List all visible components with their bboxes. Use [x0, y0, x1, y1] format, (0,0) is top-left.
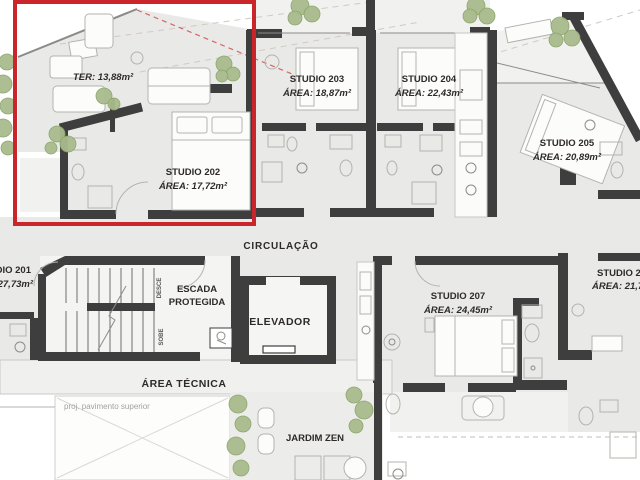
label-terrace-202: TER: 13,88m² — [73, 72, 134, 83]
label-studio-207: STUDIO 207 — [431, 291, 485, 302]
label-elevator: ELEVADOR — [249, 316, 311, 328]
stepping-stone — [258, 408, 274, 428]
label-zen-garden: JARDIM ZEN — [286, 433, 344, 444]
label-studio-205: STUDIO 205 — [540, 138, 595, 149]
label-stair-up: SOBE — [159, 328, 165, 345]
label-stair-down: DESCE — [157, 278, 163, 299]
label-area-206: ÁREA: 21,7m² — [591, 281, 640, 292]
label-stair-2: PROTEGIDA — [169, 297, 226, 308]
label-studio-204: STUDIO 204 — [402, 74, 457, 85]
label-studio-202: STUDIO 202 — [166, 167, 220, 178]
label-stair-1: ESCADA — [177, 284, 217, 295]
bed-202 — [172, 112, 250, 210]
label-studio-203: STUDIO 203 — [290, 74, 344, 85]
bed-207 — [435, 316, 517, 376]
label-area-205: ÁREA: 20,89m² — [532, 152, 602, 163]
label-area-204: ÁREA: 22,43m² — [394, 88, 464, 99]
label-studio-206: STUDIO 206 — [597, 268, 640, 279]
stepping-stone — [258, 434, 274, 454]
label-area-202: ÁREA: 17,72m² — [158, 181, 228, 192]
label-studio-201: STUDIO 201 — [0, 265, 32, 276]
label-technical-area: ÁREA TÉCNICA — [142, 377, 227, 390]
floor-plan: TER: 13,88m² STUDIO 202 ÁREA: 17,72m² ST… — [0, 0, 640, 480]
label-upper-floor-projection: proj. pavimento superior — [64, 402, 150, 411]
label-area-201: ÁREA: 27,73m² — [0, 279, 34, 290]
label-circulation: CIRCULAÇÃO — [243, 239, 318, 252]
label-area-207: ÁREA: 24,45m² — [423, 305, 493, 316]
unit-202-floor-stub — [20, 158, 60, 212]
elevator-opening — [266, 277, 300, 285]
elevator-door — [263, 346, 295, 353]
stair-landing-wall — [87, 303, 155, 311]
accessible-wc-box — [210, 328, 232, 348]
label-area-203: ÁREA: 18,87m² — [282, 88, 352, 99]
lounge-chair — [473, 397, 493, 417]
